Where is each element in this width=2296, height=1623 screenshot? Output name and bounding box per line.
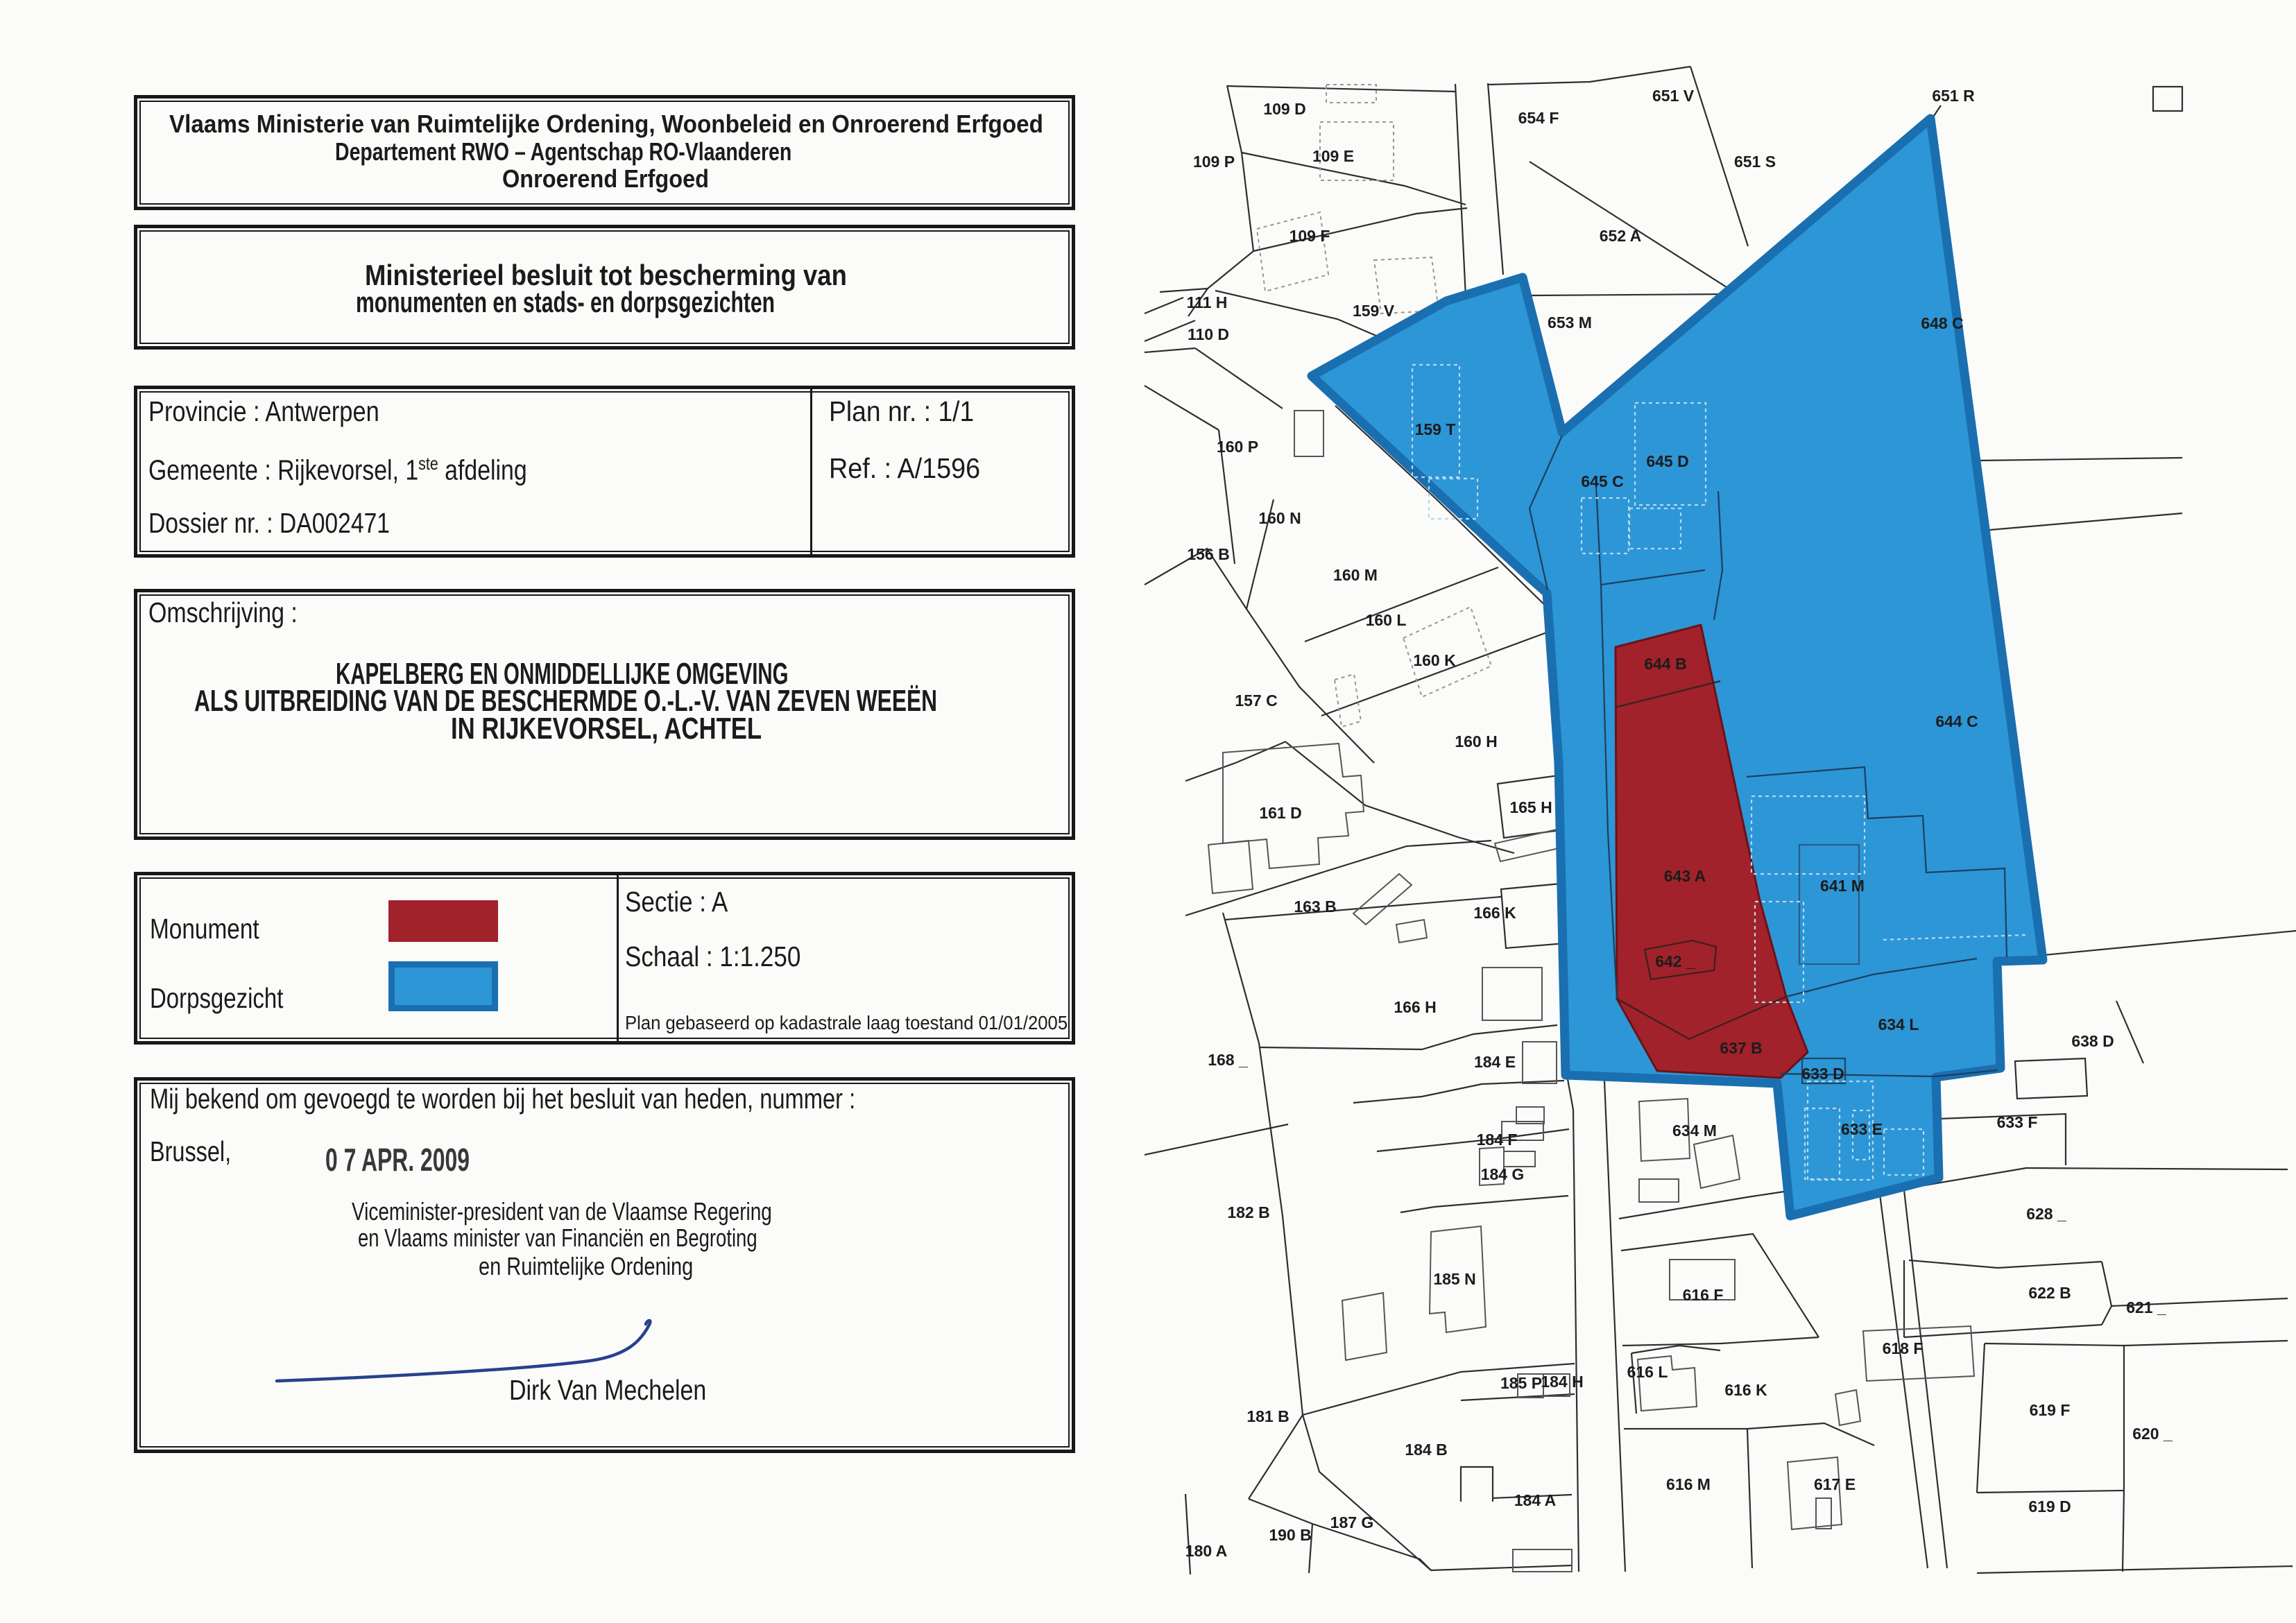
svg-text:187 G: 187 G [1330,1513,1374,1531]
svg-text:184 H: 184 H [1541,1373,1583,1391]
svg-text:628 _: 628 _ [2026,1205,2066,1223]
svg-text:109 F: 109 F [1290,227,1330,245]
svg-text:184 B: 184 B [1405,1441,1447,1459]
svg-text:644 C: 644 C [1935,712,1978,730]
svg-text:616 F: 616 F [1683,1286,1724,1304]
svg-text:184 E: 184 E [1474,1053,1516,1071]
svg-text:160 N: 160 N [1258,509,1301,527]
svg-text:633 E: 633 E [1841,1120,1883,1138]
svg-text:163 B: 163 B [1294,898,1336,916]
svg-text:160 P: 160 P [1217,438,1258,456]
svg-text:621 _: 621 _ [2126,1298,2166,1316]
svg-text:184 G: 184 G [1481,1165,1525,1183]
svg-text:185 P: 185 P [1500,1374,1542,1392]
svg-text:633 F: 633 F [1997,1113,2038,1131]
svg-text:642 _: 642 _ [1655,952,1695,970]
svg-text:652 A: 652 A [1600,227,1642,245]
svg-text:643 A: 643 A [1664,867,1706,885]
svg-text:618 F: 618 F [1883,1339,1924,1357]
svg-text:109 E: 109 E [1312,147,1354,165]
svg-text:157 C: 157 C [1235,692,1277,710]
svg-text:160 M: 160 M [1333,566,1378,584]
svg-text:168 _: 168 _ [1208,1051,1248,1069]
svg-text:619 F: 619 F [2030,1401,2071,1419]
svg-text:166 K: 166 K [1473,904,1516,922]
svg-text:619 D: 619 D [2028,1497,2071,1515]
svg-text:645 D: 645 D [1646,452,1688,470]
svg-text:651 R: 651 R [1932,87,1975,105]
svg-text:644 B: 644 B [1644,655,1686,673]
svg-text:181 B: 181 B [1246,1407,1289,1425]
svg-text:653 M: 653 M [1548,314,1592,332]
svg-text:156 B: 156 B [1187,545,1229,563]
svg-text:616 L: 616 L [1627,1363,1668,1381]
svg-text:190 B: 190 B [1269,1526,1311,1544]
svg-text:641 M: 641 M [1820,877,1865,895]
svg-text:616 M: 616 M [1666,1475,1711,1493]
svg-text:617 E: 617 E [1814,1475,1856,1493]
svg-text:645 C: 645 C [1581,472,1623,490]
svg-text:616 K: 616 K [1724,1381,1767,1399]
svg-text:638 D: 638 D [2071,1032,2114,1050]
svg-text:110 D: 110 D [1188,325,1229,343]
svg-text:620 _: 620 _ [2132,1425,2173,1443]
svg-text:159 V: 159 V [1353,302,1395,320]
svg-text:160 L: 160 L [1366,611,1407,629]
svg-text:634 L: 634 L [1878,1015,1919,1033]
svg-text:109 D: 109 D [1263,100,1305,118]
svg-text:109 P: 109 P [1193,153,1235,171]
svg-text:161 D: 161 D [1259,804,1301,822]
svg-text:651 S: 651 S [1734,153,1776,171]
svg-text:166 H: 166 H [1394,998,1436,1016]
svg-text:184 F: 184 F [1477,1131,1518,1149]
svg-text:182 B: 182 B [1227,1203,1269,1221]
svg-text:159 T: 159 T [1415,420,1456,438]
svg-text:651 V: 651 V [1652,87,1695,105]
svg-text:160 H: 160 H [1455,732,1497,750]
svg-text:185 N: 185 N [1433,1270,1475,1288]
svg-text:184 A: 184 A [1514,1491,1557,1509]
svg-text:622 B: 622 B [2028,1284,2071,1302]
svg-text:633 D: 633 D [1801,1065,1844,1083]
svg-text:165 H: 165 H [1509,798,1552,816]
svg-text:648 C: 648 C [1921,314,1963,332]
svg-text:160 K: 160 K [1413,651,1456,669]
svg-text:637 B: 637 B [1720,1039,1762,1057]
svg-text:180 A: 180 A [1185,1542,1228,1560]
svg-text:111 H: 111 H [1187,293,1228,311]
svg-text:634 M: 634 M [1672,1122,1717,1140]
svg-text:654 F: 654 F [1518,109,1559,127]
